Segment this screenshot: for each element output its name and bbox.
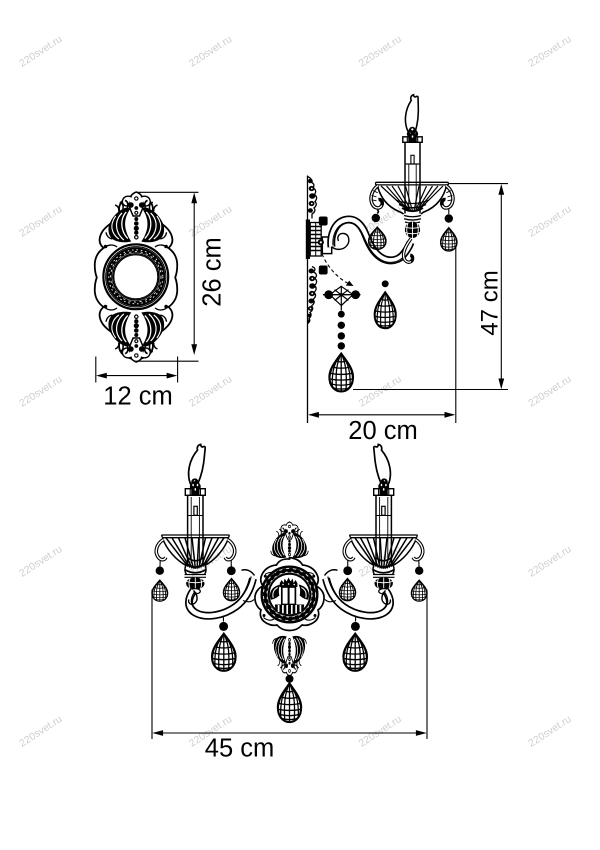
svg-text:26 cm: 26 cm [199, 237, 227, 306]
svg-text:20 cm: 20 cm [348, 417, 417, 445]
svg-text:45 cm: 45 cm [205, 735, 274, 763]
svg-text:12 cm: 12 cm [103, 383, 172, 411]
svg-text:47 cm: 47 cm [477, 270, 504, 335]
